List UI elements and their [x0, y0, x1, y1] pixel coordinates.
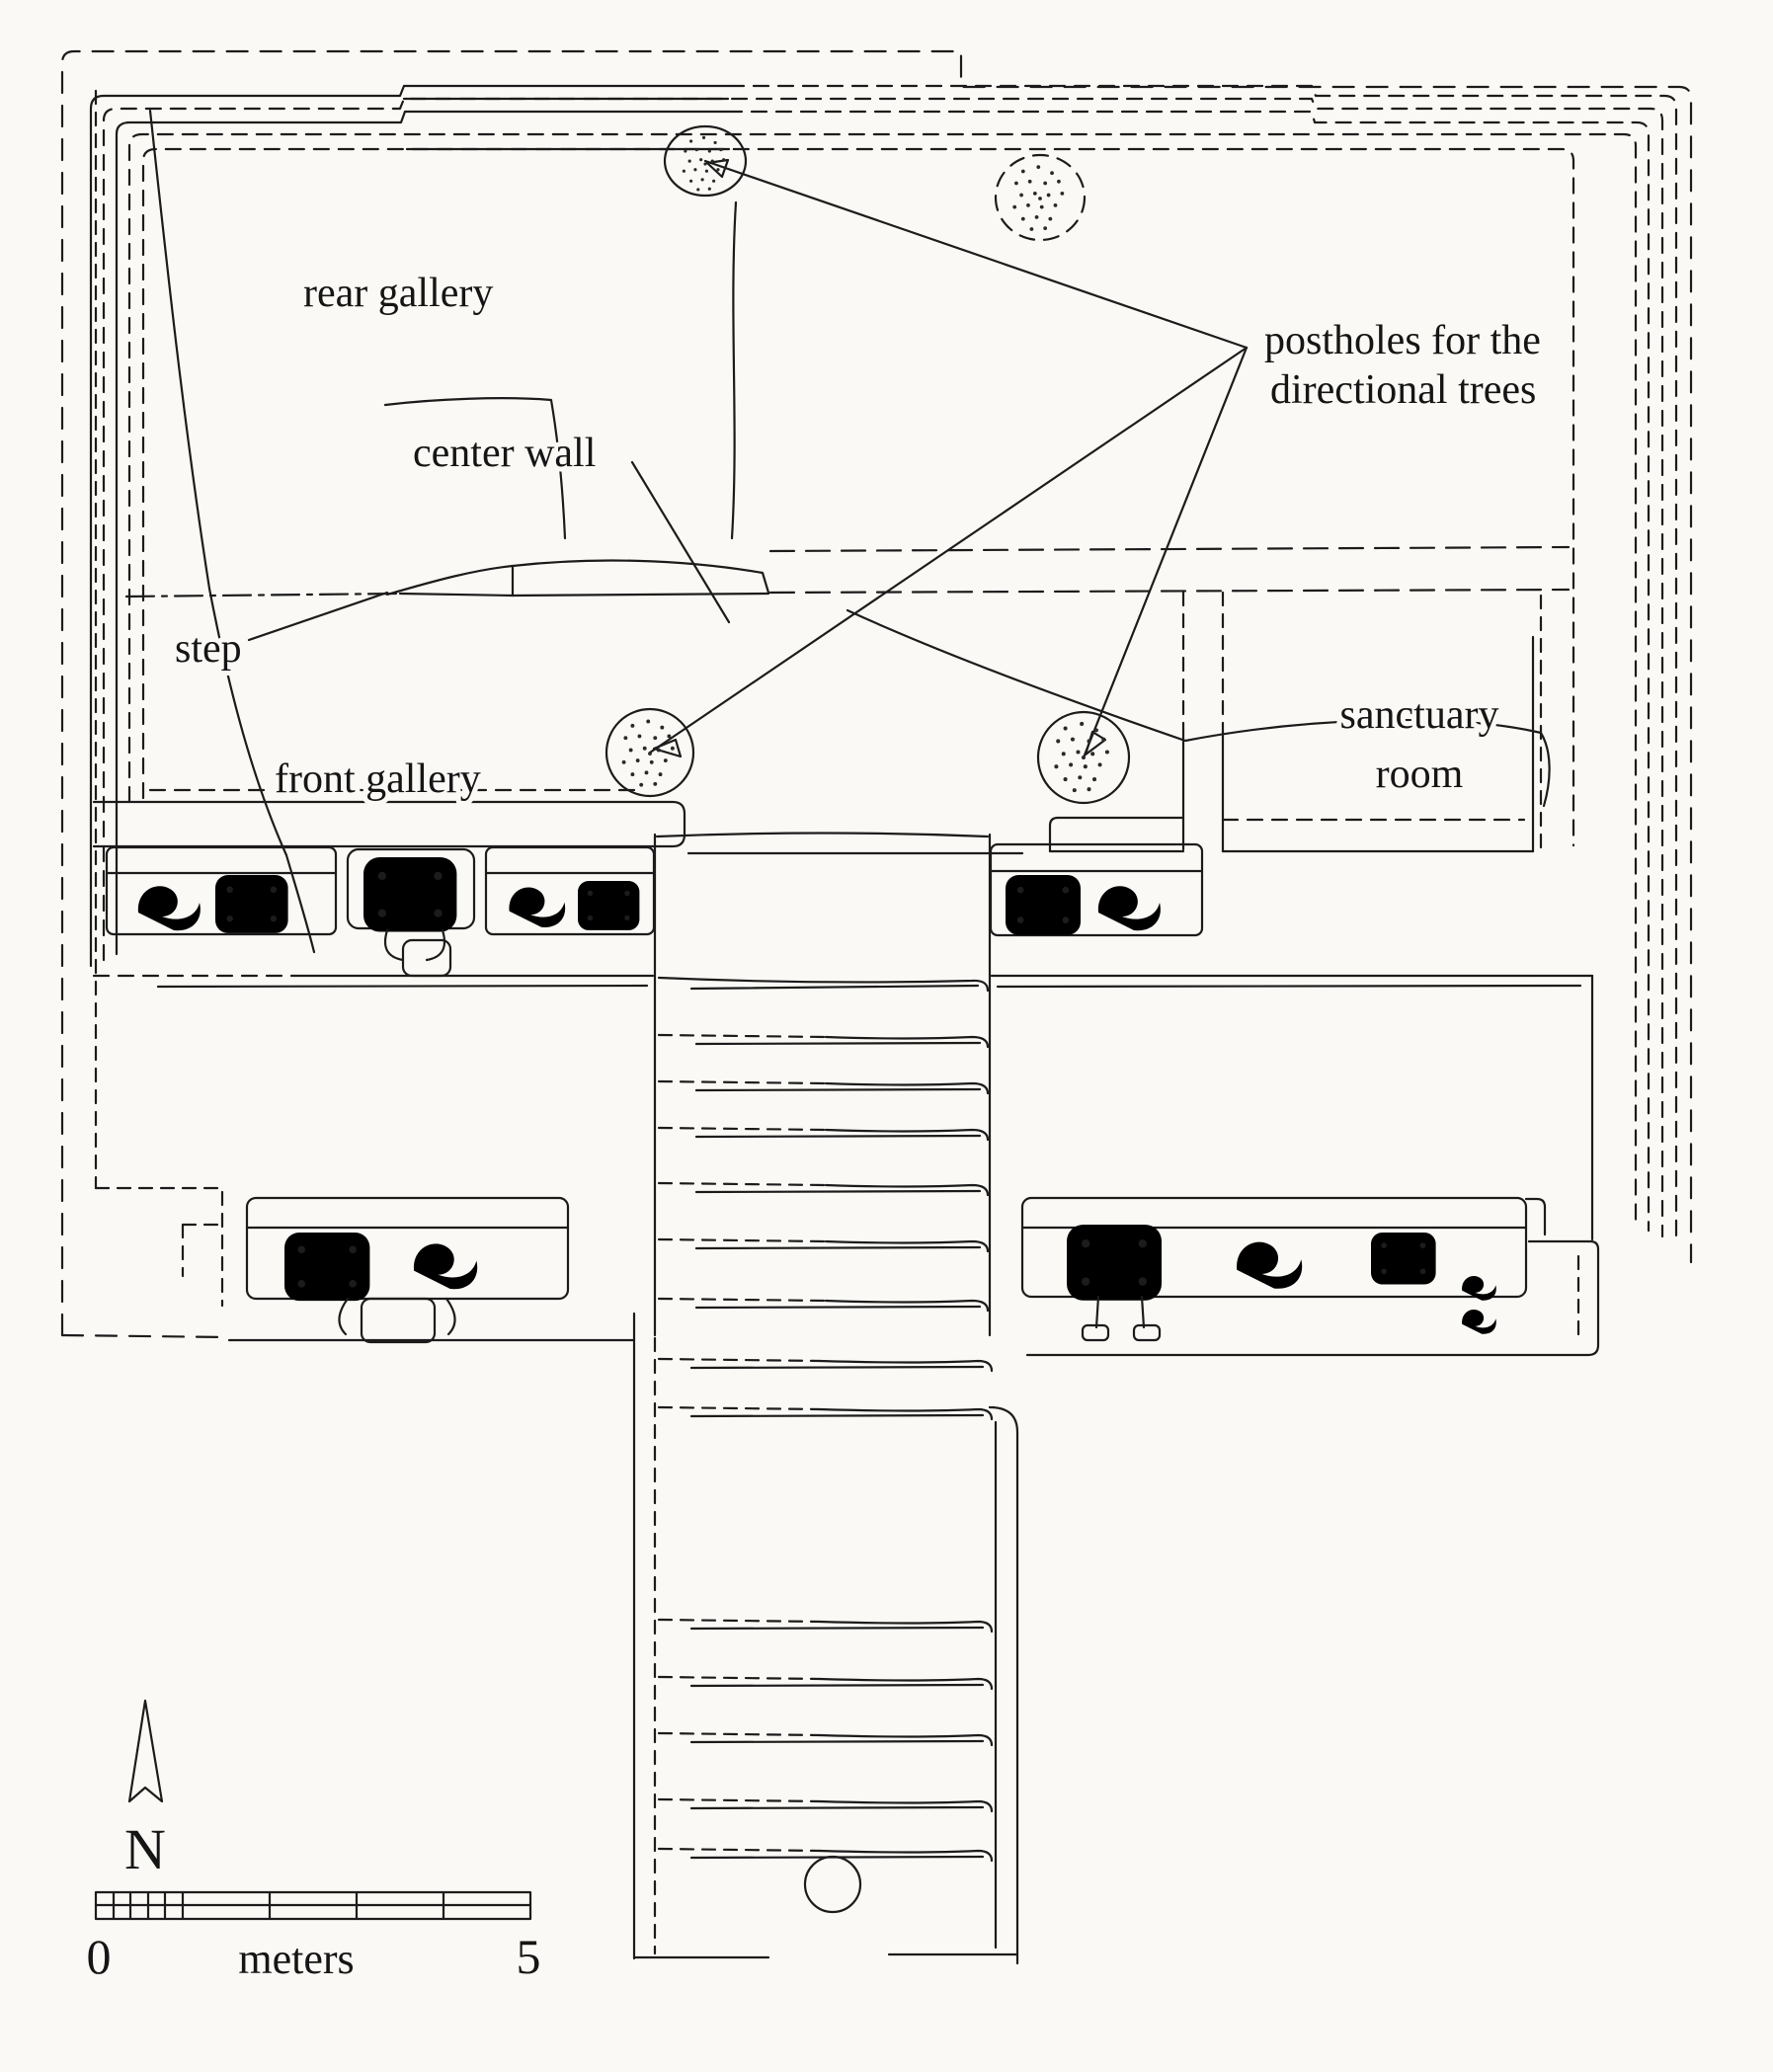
glyph-band-upper-east: [991, 844, 1202, 935]
glyph-band-upper-left: [107, 847, 336, 934]
lower-stairway: [634, 1314, 1017, 1963]
figure-labels: rear gallery center wall step front gall…: [87, 271, 1541, 1984]
label-sanctuary-room-line2: room: [1376, 752, 1464, 797]
glyph-band-lower-left: [247, 1198, 568, 1342]
label-sanctuary-room-line1: sanctuary: [1340, 692, 1499, 738]
label-postholes-line1: postholes for the: [1264, 318, 1541, 363]
scanned-figure-page: rear gallery center wall step front gall…: [0, 0, 1773, 2072]
label-front-gallery: front gallery: [275, 757, 481, 802]
glyph-band-upper-right-of-mask: [486, 847, 654, 934]
label-north: N: [124, 1817, 166, 1881]
label-postholes-line2: directional trees: [1270, 367, 1536, 413]
scale-end-value: 5: [517, 1929, 541, 1984]
north-arrow: [129, 1701, 162, 1801]
label-step: step: [175, 626, 242, 672]
temple-plan-figure: rear gallery center wall step front gall…: [0, 0, 1773, 2072]
scale-unit-label: meters: [238, 1935, 354, 1983]
posthole-northeast-dashed: [996, 155, 1085, 240]
glyph-band-lower-right: [1022, 1198, 1526, 1340]
scale-start-value: 0: [87, 1929, 112, 1984]
leader-lines: [249, 160, 1247, 757]
center-wall: [126, 547, 1569, 597]
building-walls: [91, 86, 1676, 1242]
glyph-mask-upper-center: [348, 849, 474, 976]
label-center-wall: center wall: [413, 431, 596, 476]
label-rear-gallery: rear gallery: [303, 271, 493, 316]
scale-bar: [96, 1892, 530, 1919]
posthole-southeast: [1038, 712, 1129, 803]
crack-lines: [150, 111, 1550, 952]
upper-stairway: [655, 834, 990, 1336]
stair-base-circle: [805, 1857, 860, 1912]
